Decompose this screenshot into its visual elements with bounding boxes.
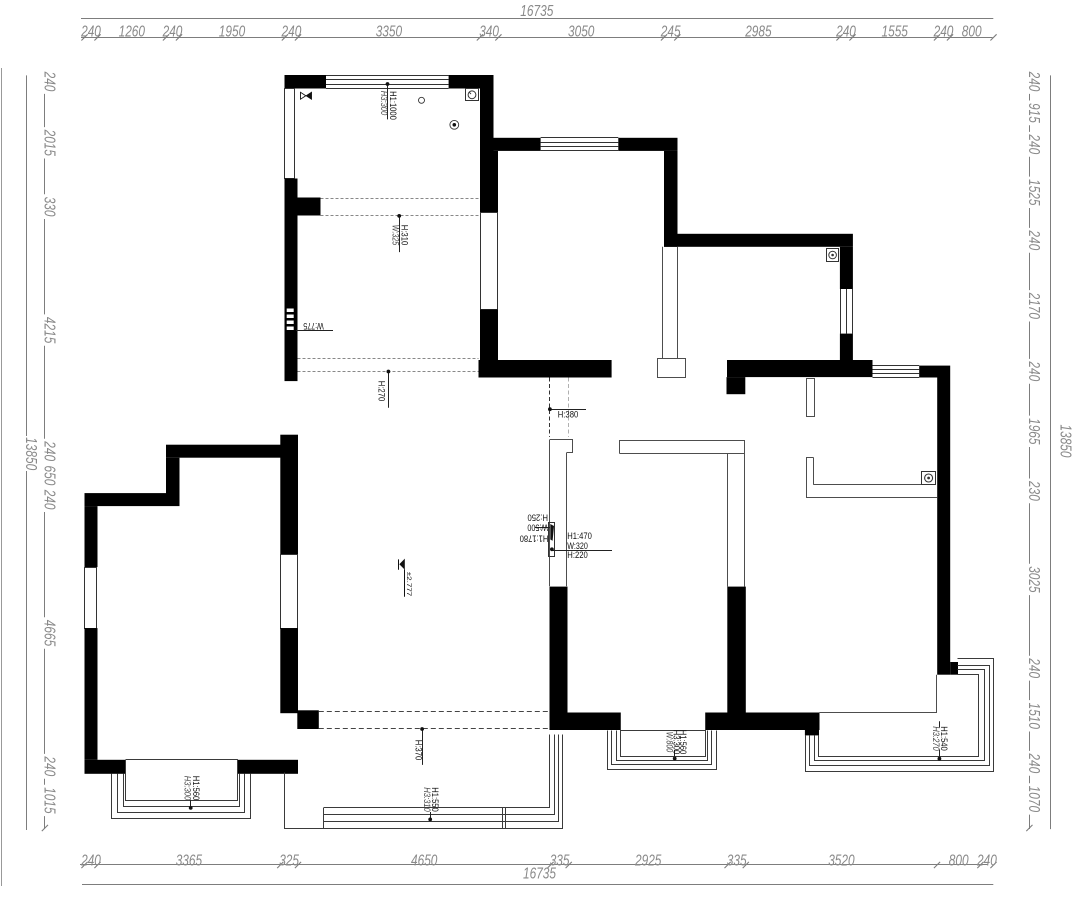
- svg-text:H:370: H:370: [414, 740, 424, 761]
- svg-text:240: 240: [80, 853, 101, 870]
- svg-text:3520: 3520: [828, 853, 854, 870]
- svg-text:240: 240: [80, 24, 101, 41]
- svg-text:230: 230: [1025, 480, 1042, 501]
- svg-text:240: 240: [41, 71, 58, 92]
- svg-text:H1:550: H1:550: [430, 787, 440, 812]
- svg-text:240: 240: [1025, 230, 1042, 251]
- svg-text:16735: 16735: [523, 866, 556, 883]
- svg-text:W:500: W:500: [527, 522, 548, 532]
- svg-text:H:220: H:220: [567, 550, 588, 560]
- svg-text:240: 240: [1025, 753, 1042, 774]
- svg-text:1260: 1260: [119, 24, 145, 41]
- svg-text:245: 245: [660, 24, 681, 41]
- svg-text:2170: 2170: [1025, 292, 1042, 319]
- svg-text:13850: 13850: [1056, 425, 1073, 458]
- svg-text:650: 650: [41, 466, 58, 486]
- svg-text:335: 335: [727, 853, 747, 870]
- svg-text:1510: 1510: [1025, 703, 1042, 729]
- svg-text:2015: 2015: [41, 129, 58, 156]
- svg-text:H:380: H:380: [558, 410, 579, 420]
- svg-text:240: 240: [835, 24, 856, 41]
- svg-text:16735: 16735: [520, 3, 553, 20]
- svg-text:1965: 1965: [1025, 418, 1042, 444]
- svg-text:±2.777: ±2.777: [405, 572, 412, 597]
- svg-text:4665: 4665: [41, 620, 58, 646]
- svg-text:240: 240: [1025, 134, 1042, 155]
- svg-text:H:250: H:250: [527, 512, 548, 522]
- svg-text:3350: 3350: [376, 24, 402, 41]
- svg-text:1950: 1950: [219, 24, 245, 41]
- svg-text:240: 240: [1025, 658, 1042, 679]
- svg-text:240: 240: [41, 756, 58, 777]
- svg-text:H1:1000: H1:1000: [388, 91, 398, 120]
- svg-text:H3:300: H3:300: [379, 91, 389, 116]
- svg-text:240: 240: [1025, 71, 1042, 92]
- svg-text:800: 800: [962, 24, 982, 41]
- svg-text:3365: 3365: [176, 853, 202, 870]
- svg-text:H:270: H:270: [377, 381, 387, 402]
- svg-text:H1:560: H1:560: [678, 730, 688, 755]
- svg-text:915: 915: [1025, 103, 1042, 123]
- svg-text:H1:560: H1:560: [191, 776, 201, 801]
- svg-text:4650: 4650: [411, 853, 437, 870]
- svg-text:1015: 1015: [41, 787, 58, 813]
- svg-text:240: 240: [976, 853, 997, 870]
- svg-text:1555: 1555: [882, 24, 908, 41]
- svg-text:W:775: W:775: [303, 321, 324, 331]
- svg-text:240: 240: [933, 24, 954, 41]
- svg-text:2925: 2925: [634, 853, 661, 870]
- svg-text:3025: 3025: [1025, 566, 1042, 592]
- svg-text:1070: 1070: [1025, 786, 1042, 812]
- svg-text:240: 240: [41, 489, 58, 510]
- svg-text:240: 240: [1025, 361, 1042, 382]
- svg-text:240: 240: [162, 24, 183, 41]
- svg-text:240: 240: [281, 24, 302, 41]
- svg-text:H1:1780: H1:1780: [520, 534, 549, 544]
- svg-text:240: 240: [41, 441, 58, 462]
- svg-text:2985: 2985: [744, 24, 771, 41]
- svg-text:3050: 3050: [568, 24, 594, 41]
- svg-text:340: 340: [479, 24, 499, 41]
- svg-text:4215: 4215: [41, 317, 58, 343]
- svg-text:H1:540: H1:540: [939, 726, 949, 751]
- svg-text:H3:300: H3:300: [182, 776, 192, 801]
- svg-text:H1:470: H1:470: [567, 531, 592, 541]
- svg-text:325: 325: [279, 853, 299, 870]
- svg-text:H:310: H:310: [400, 225, 410, 246]
- svg-text:800: 800: [949, 853, 969, 870]
- svg-text:1525: 1525: [1025, 179, 1042, 205]
- svg-text:13850: 13850: [22, 437, 39, 470]
- svg-text:330: 330: [41, 197, 58, 217]
- svg-text:W:325: W:325: [390, 225, 400, 246]
